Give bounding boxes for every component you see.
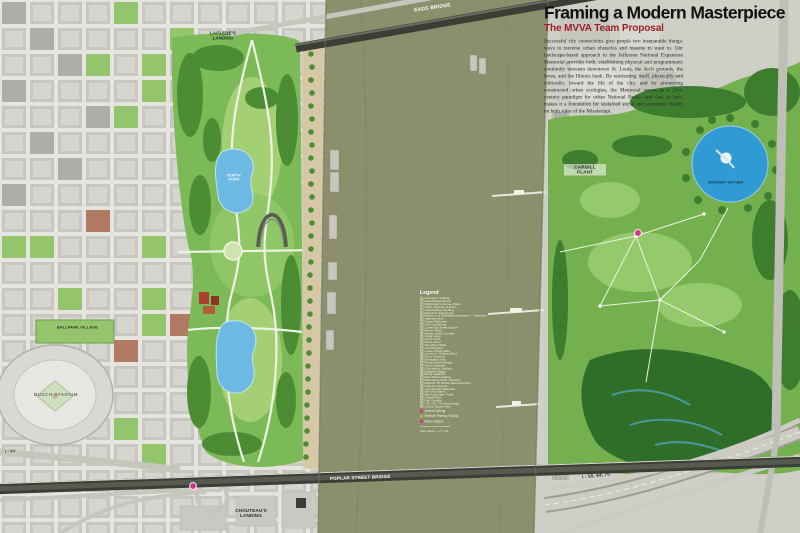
legend-special-marker: Metro Station	[420, 419, 520, 424]
legend: Legend 1Laclede's Landing2Eads Bridge Ar…	[420, 290, 520, 433]
label-interstate-east: I - 55, 64, 70	[582, 472, 610, 480]
label-busch-stadium: BUSCH STADIUM	[11, 392, 101, 397]
legend-item-number: 38	[420, 405, 423, 408]
legend-marker-label: Remote Parking Facility	[425, 415, 459, 419]
title-block: Framing a Modern Masterpiece The MVVA Te…	[544, 4, 797, 115]
legend-scale-note: Max Water = +7' msl	[420, 429, 520, 433]
intro-paragraph: Successful city connections give people …	[544, 38, 683, 115]
label-lacledes-landing: LACLEDE'S LANDING	[199, 31, 247, 41]
page-title: Framing a Modern Masterpiece	[544, 4, 797, 22]
legend-marker-list: Arrival ParkingRemote Parking FacilityMe…	[420, 409, 520, 424]
legend-item: 38Casino Queen Site	[420, 405, 520, 408]
label-cargill-plant: CARGILL PLANT	[564, 164, 606, 175]
page-subtitle: The MVVA Team Proposal	[544, 23, 797, 33]
label-interstate-west: I - 64	[5, 449, 16, 454]
label-chouteaus-landing: CHOUTEAU'S LANDING	[221, 508, 281, 518]
circle-marker-icon	[420, 420, 423, 423]
site-plan-poster: Framing a Modern Masterpiece The MVVA Te…	[0, 0, 800, 533]
legend-item-list: 1Laclede's Landing2Eads Bridge Arrival3W…	[420, 297, 520, 408]
legend-special-marker: Arrival Parking	[420, 409, 520, 414]
square-marker-icon	[420, 410, 423, 413]
square-marker-icon	[420, 415, 423, 418]
legend-special-marker: Remote Parking Facility	[420, 414, 520, 419]
label-eads-bridge: EADS BRIDGE	[414, 2, 451, 13]
legend-title: Legend	[420, 290, 520, 296]
label-gateway-geyser: GATEWAY GEYSER	[698, 181, 753, 185]
legend-marker-label: Arrival Parking	[425, 409, 446, 413]
label-poplar-street-bridge: POPLAR STREET BRIDGE	[330, 474, 391, 481]
label-north-pond: NORTH POND	[219, 174, 249, 182]
legend-item-label: Casino Queen Site	[425, 405, 451, 409]
legend-scale-bar	[420, 426, 450, 427]
legend-marker-label: Metro Station	[425, 420, 444, 424]
label-ballpark-village: BALLPARK VILLAGE	[40, 325, 115, 330]
